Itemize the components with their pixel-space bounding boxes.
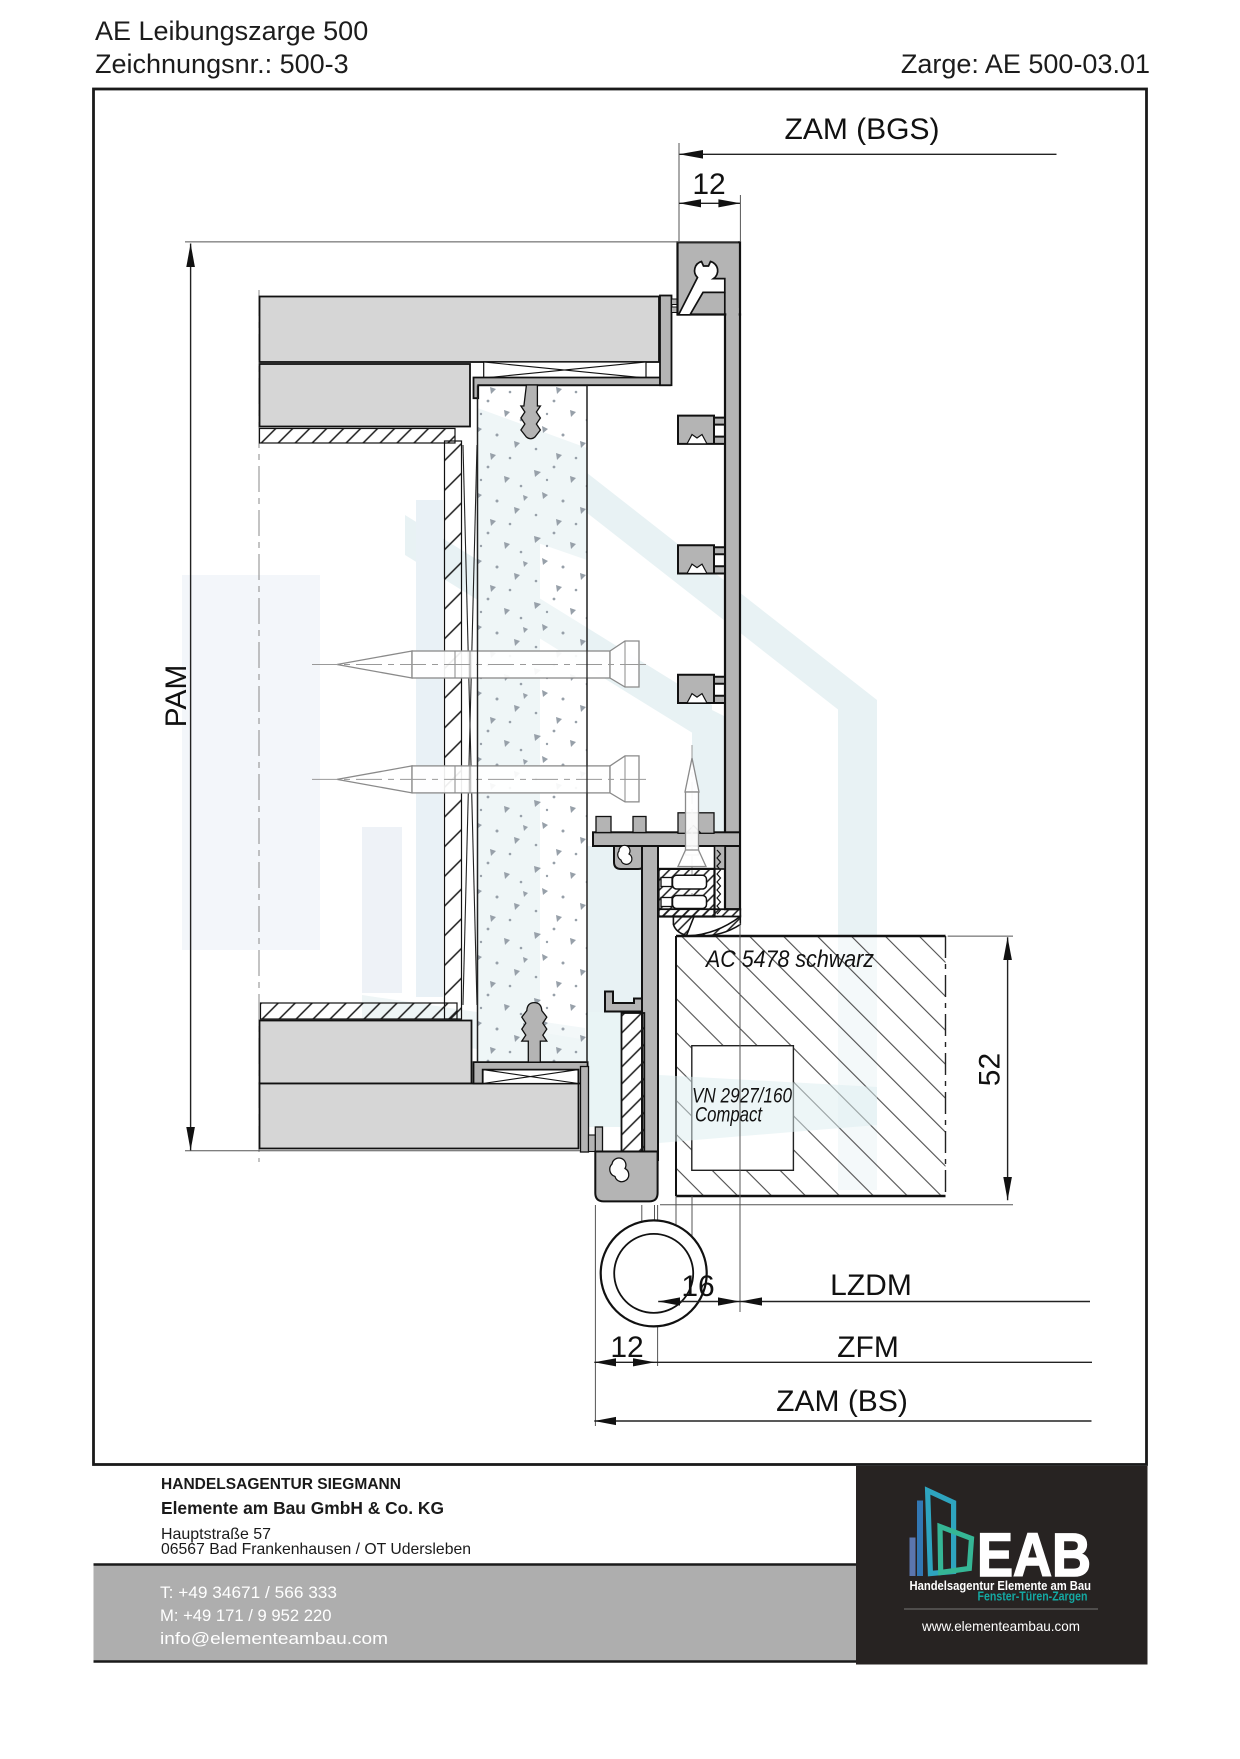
svg-text:ZAM (BS): ZAM (BS) bbox=[776, 1385, 908, 1418]
svg-text:AC 5478 schwarz: AC 5478 schwarz bbox=[704, 946, 874, 973]
svg-text:T: +49 34671 / 566 333: T: +49 34671 / 566 333 bbox=[160, 1583, 337, 1602]
svg-text:AE Leibungszarge 500: AE Leibungszarge 500 bbox=[95, 16, 368, 46]
svg-text:16: 16 bbox=[681, 1270, 714, 1303]
svg-text:ZFM: ZFM bbox=[837, 1331, 899, 1364]
svg-text:52: 52 bbox=[974, 1053, 1007, 1086]
svg-text:Fenster-Türen-Zargen: Fenster-Türen-Zargen bbox=[978, 1590, 1088, 1604]
svg-text:LZDM: LZDM bbox=[830, 1269, 912, 1302]
svg-text:12: 12 bbox=[692, 168, 725, 201]
svg-text:Zarge: AE 500-03.01: Zarge: AE 500-03.01 bbox=[901, 49, 1150, 79]
svg-text:06567 Bad Frankenhausen / OT U: 06567 Bad Frankenhausen / OT Udersleben bbox=[161, 1541, 471, 1558]
svg-text:www.elementeambau.com: www.elementeambau.com bbox=[921, 1618, 1080, 1634]
svg-text:ZAM (BGS): ZAM (BGS) bbox=[785, 113, 940, 146]
svg-text:Zeichnungsnr.: 500-3: Zeichnungsnr.: 500-3 bbox=[95, 49, 349, 79]
svg-text:HANDELSAGENTUR SIEGMANN: HANDELSAGENTUR SIEGMANN bbox=[161, 1476, 401, 1493]
svg-text:info@elementeambau.com: info@elementeambau.com bbox=[160, 1629, 388, 1648]
svg-text:M: +49 171 / 9 952 220: M: +49 171 / 9 952 220 bbox=[160, 1606, 332, 1625]
svg-text:PAM: PAM bbox=[160, 665, 193, 728]
svg-text:Compact: Compact bbox=[695, 1104, 763, 1127]
svg-text:Elemente am Bau GmbH & Co. KG: Elemente am Bau GmbH & Co. KG bbox=[161, 1498, 444, 1518]
